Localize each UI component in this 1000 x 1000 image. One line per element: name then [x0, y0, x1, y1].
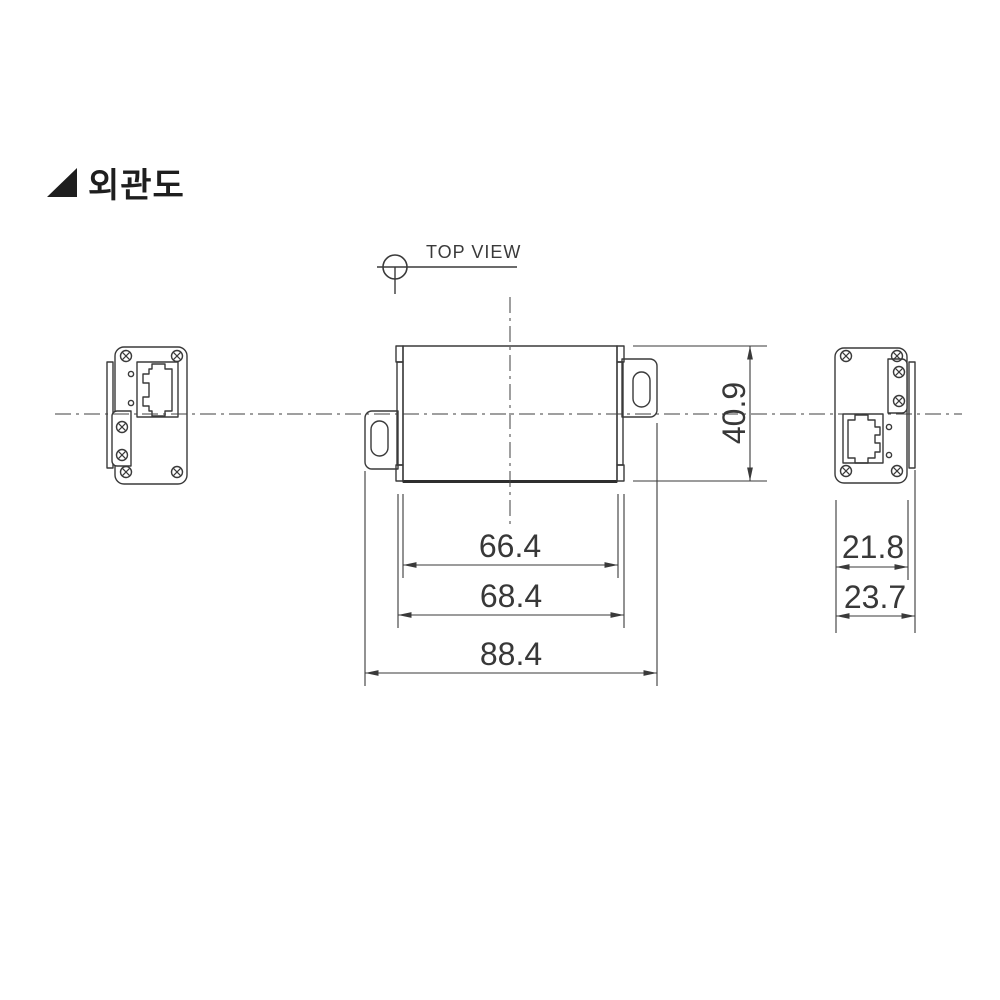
dim-label-body-height: 40.9: [716, 382, 752, 444]
end-plate-tab: [617, 465, 624, 481]
dim-label-total-width: 88.4: [480, 636, 542, 672]
dim-label-body-width: 66.4: [479, 528, 541, 564]
dim-label-plate-width: 68.4: [480, 578, 542, 614]
title-block: 외관도: [47, 167, 185, 205]
left-side-view: [107, 347, 187, 484]
title-triangle-icon: [47, 168, 77, 197]
end-plate-tab: [396, 346, 403, 362]
projection-note: TOP VIEW: [377, 242, 521, 294]
top-view-label: TOP VIEW: [426, 242, 521, 262]
rj45-port: [843, 414, 883, 463]
dim-label-side-face-width: 21.8: [842, 529, 904, 565]
mounting-flange-right: [622, 359, 657, 417]
mounting-flange-left: [365, 411, 398, 469]
right-side-view: [835, 348, 915, 483]
drawing-svg: 외관도 TOP VIEW: [0, 0, 1000, 1000]
page-title: 외관도: [88, 167, 185, 205]
mounting-bracket: [112, 411, 131, 466]
drawing-canvas: 외관도 TOP VIEW: [0, 0, 1000, 1000]
side-rail: [909, 362, 915, 468]
dim-label-side-total-depth: 23.7: [844, 579, 906, 615]
